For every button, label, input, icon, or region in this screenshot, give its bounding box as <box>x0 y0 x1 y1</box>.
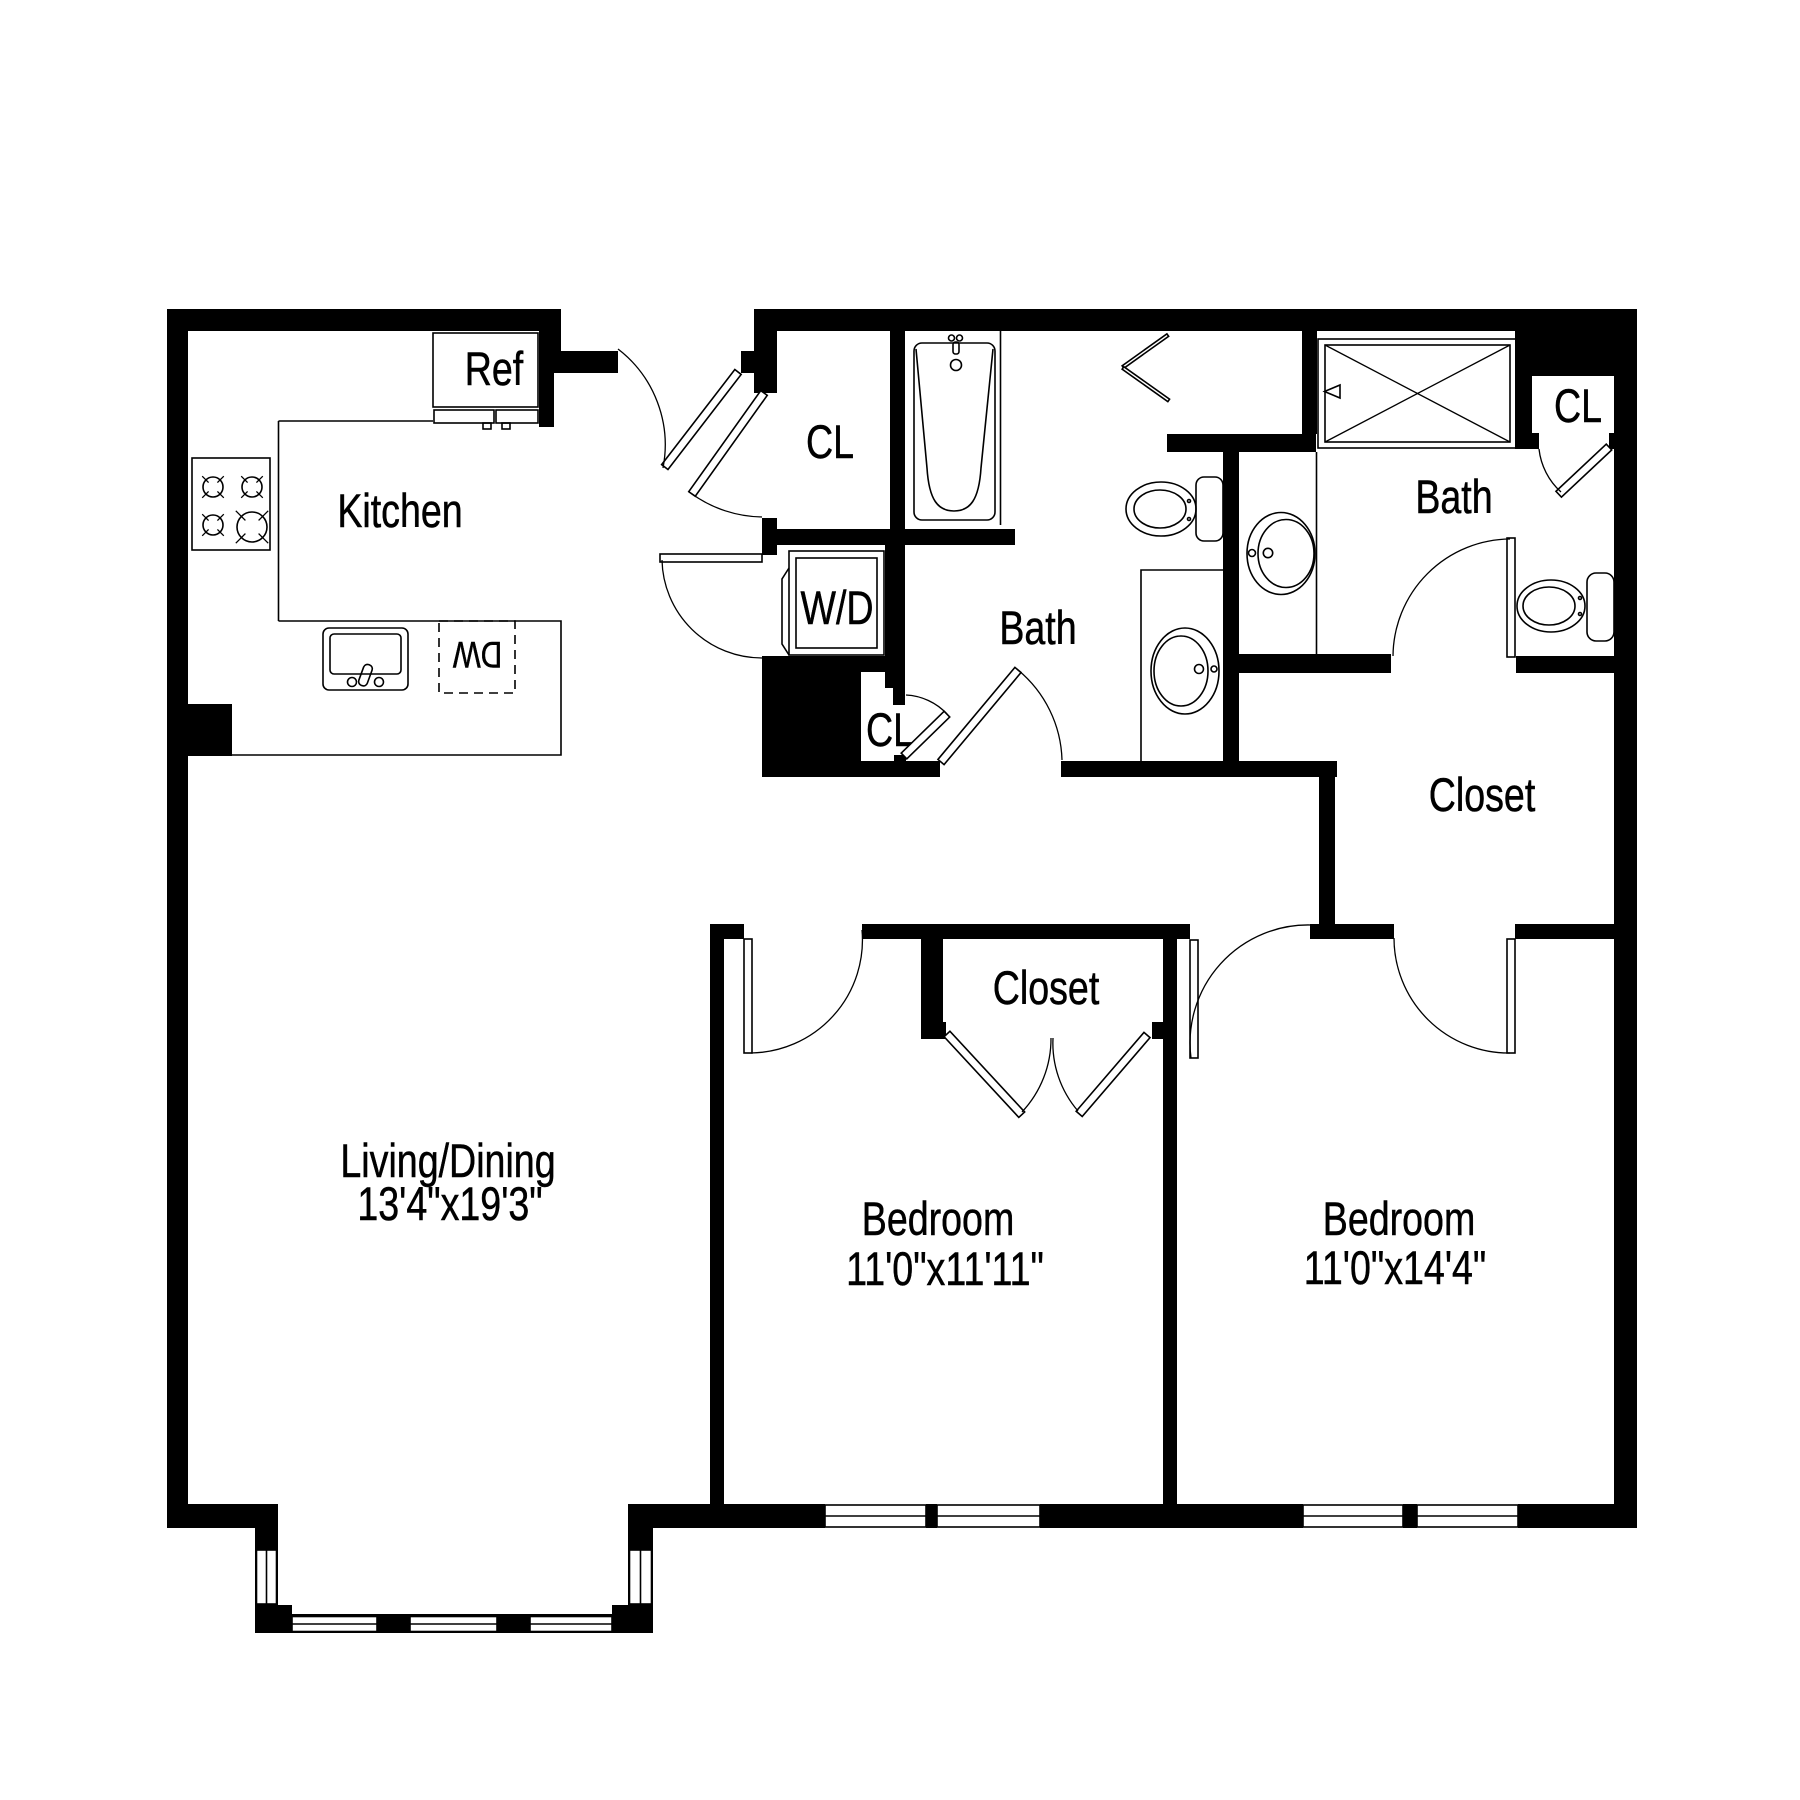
svg-text:Bath: Bath <box>1415 471 1492 524</box>
svg-text:13'4"x19'3": 13'4"x19'3" <box>357 1178 542 1231</box>
svg-text:Closet: Closet <box>993 962 1100 1015</box>
svg-text:Ref: Ref <box>465 343 524 396</box>
svg-text:Bedroom: Bedroom <box>1323 1193 1476 1246</box>
svg-text:CL: CL <box>1554 380 1602 433</box>
svg-text:Bath: Bath <box>999 602 1076 655</box>
svg-text:Bedroom: Bedroom <box>862 1193 1015 1246</box>
svg-text:DW: DW <box>453 633 503 674</box>
svg-text:W/D: W/D <box>800 582 873 635</box>
svg-text:CL: CL <box>806 416 854 469</box>
svg-text:11'0"x14'4": 11'0"x14'4" <box>1304 1242 1486 1295</box>
svg-text:Kitchen: Kitchen <box>337 485 462 538</box>
svg-text:Closet: Closet <box>1429 769 1536 822</box>
svg-text:11'0"x11'11": 11'0"x11'11" <box>846 1243 1044 1296</box>
